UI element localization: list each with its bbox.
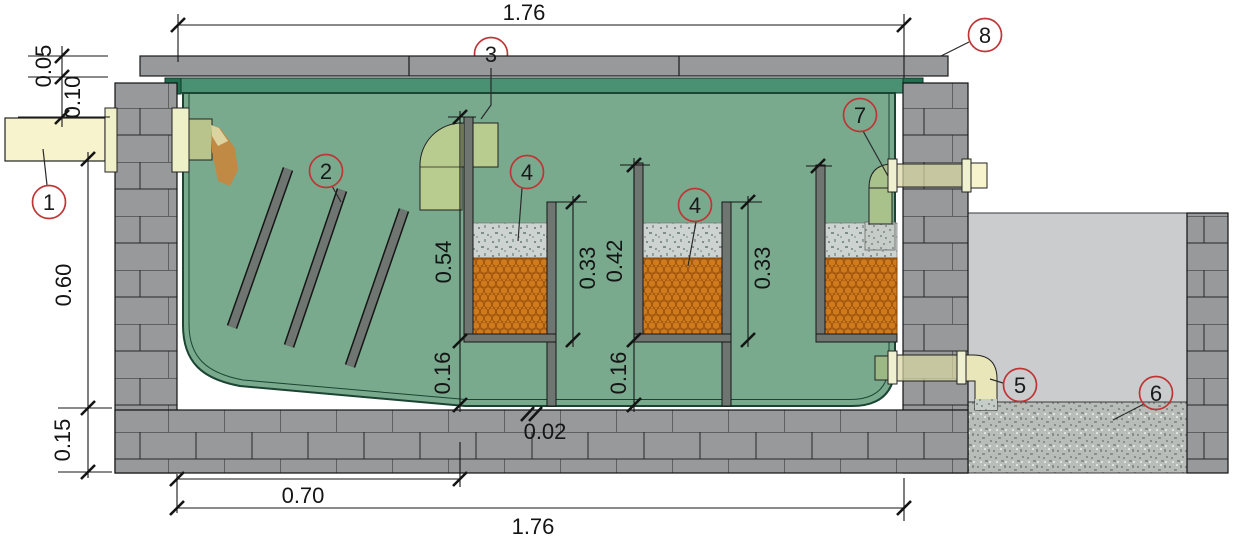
leader-8 [941,42,969,56]
dim-label-tray2-wall: 0.33 [750,247,775,290]
callout-number-3: 3 [485,42,497,67]
pipe5-wall-sleeve [892,355,960,381]
tray3-left-baffle [816,165,825,334]
tray1-gravel-layer [473,223,547,258]
pipe5-gravel-embed [975,399,997,410]
cover-slab-body [140,56,948,76]
dim-label-depth: 0.60 [51,264,76,307]
septic-tank-section-drawing: 1.76 0.05 0.10 0.60 0.15 0.70 1.76 0.54 … [0,0,1258,539]
pipe7-flange-inner [888,159,897,192]
inlet-stub [189,119,212,160]
dim-label-base: 0.15 [50,419,75,462]
callout-number-2: 2 [320,159,332,184]
dim-label-slope: 0.02 [524,419,567,444]
pipe5-flange-outer [957,351,966,384]
tray1-support-leg [547,342,556,406]
pipe7-riser [869,187,892,224]
inlet-pipe-body [5,118,105,161]
callout-number-4a: 4 [521,160,533,185]
callout-number-4b: 4 [689,193,701,218]
dim-label-baffle2: 0.42 [602,240,627,283]
dim-label-gap2: 0.16 [606,352,631,395]
dim-label-tray1-wall: 0.33 [575,247,600,290]
dim-label-gap1: 0.16 [430,352,455,395]
pipe7-wall-sleeve [892,164,962,187]
tray1-right-wall [547,202,556,334]
tray3-filter-media [825,258,897,334]
dim-label-floor-run: 0.70 [282,483,325,508]
technical-drawing-canvas: 1.76 0.05 0.10 0.60 0.15 0.70 1.76 0.54 … [0,0,1258,539]
dim-label-inlet-offset: 0.10 [60,76,85,119]
dim-label-bottom-width: 1.76 [512,514,555,539]
tank-rim [165,78,923,94]
dim-label-baffle1: 0.54 [431,241,456,284]
tray2-filter-media [643,258,722,334]
callout-number-1: 1 [43,190,55,215]
tray2-gravel-layer [643,223,722,258]
cover-slab [140,56,948,76]
pipe7-gravel-embed [865,222,895,250]
dim-label-top-width: 1.76 [503,0,546,25]
callout-number-5: 5 [1014,373,1026,398]
pit-right-wall [1187,213,1228,473]
callout-number-8: 8 [979,23,991,48]
tray2-left-baffle [634,163,643,334]
inlet-collar-outer [105,108,117,172]
rim-band [180,78,903,93]
pipe7-end-cap [971,163,987,188]
tray2-right-wall [722,202,731,334]
tray3-shelf [816,334,897,342]
callout-number-7: 7 [854,103,866,128]
callout-number-6: 6 [1150,381,1162,406]
tray1-shelf [464,334,556,342]
dim-label-cover: 0.05 [31,45,56,88]
tray2-shelf [634,334,731,342]
pipe7-flange-outer [962,159,971,192]
tray1-left-baffle [464,117,473,334]
pipe5-flange-inner [888,351,897,384]
soakaway-pit [968,213,1228,473]
tray1-filter-media [473,258,547,334]
tray2-support-leg [722,342,731,406]
inlet-collar-inner [172,108,189,172]
pit-gravel-bed [968,402,1187,473]
